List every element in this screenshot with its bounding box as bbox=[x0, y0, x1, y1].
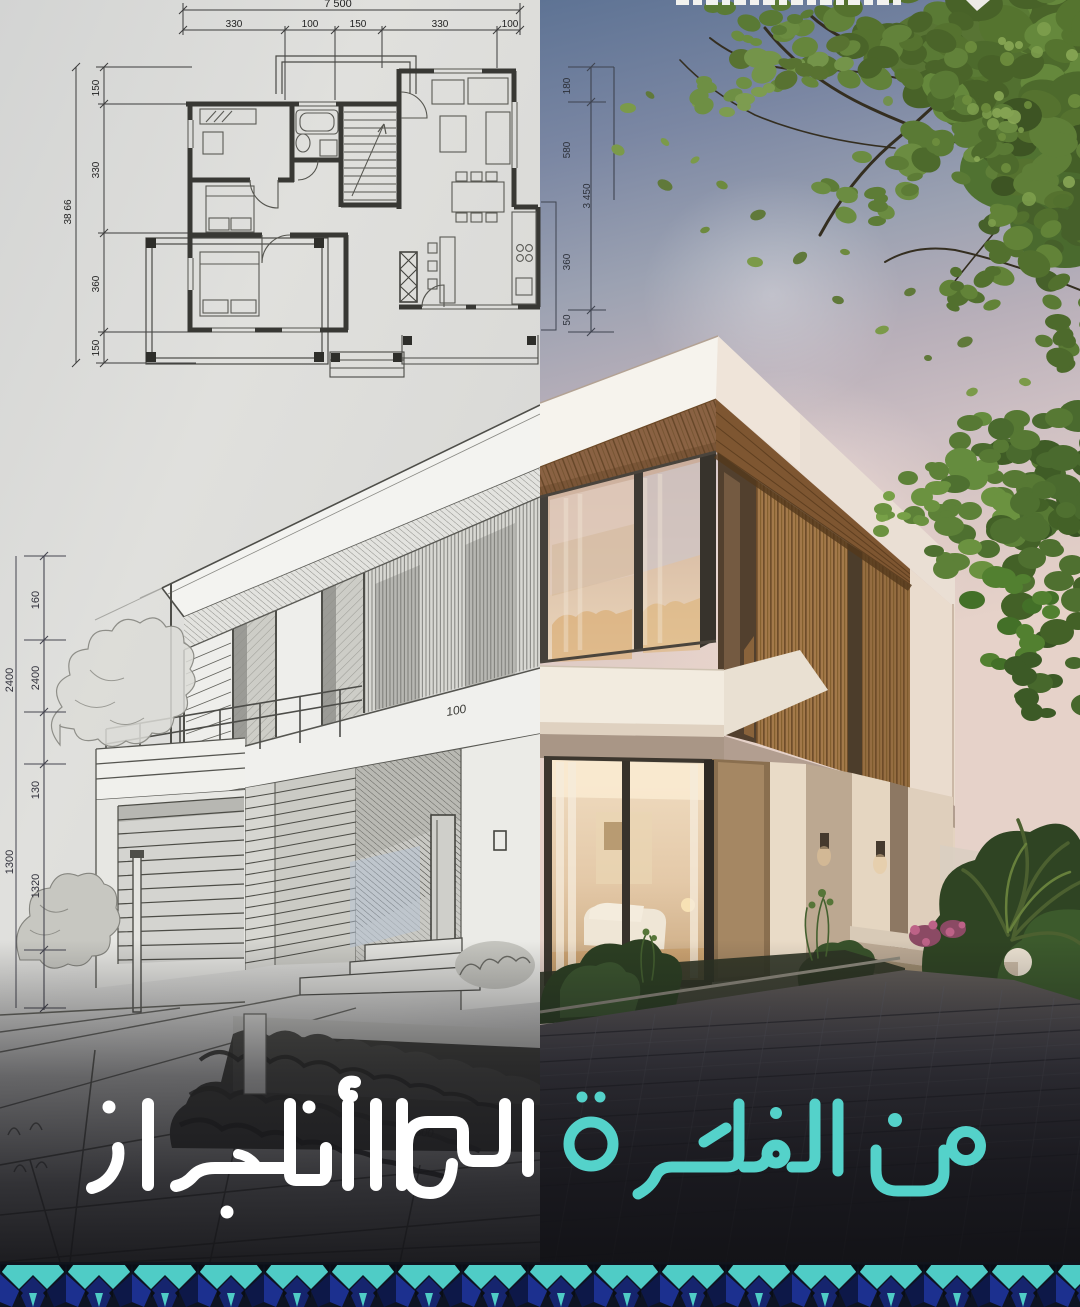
svg-text:1320: 1320 bbox=[30, 874, 42, 898]
svg-text:7 500: 7 500 bbox=[324, 0, 352, 10]
svg-text:330: 330 bbox=[91, 161, 102, 178]
svg-text:130: 130 bbox=[30, 781, 42, 799]
svg-text:330: 330 bbox=[432, 19, 449, 30]
svg-text:2400: 2400 bbox=[4, 668, 16, 692]
svg-text:150: 150 bbox=[91, 79, 102, 96]
svg-text:150: 150 bbox=[91, 339, 102, 356]
svg-text:50: 50 bbox=[562, 314, 573, 326]
svg-text:38 66: 38 66 bbox=[63, 199, 74, 224]
svg-text:150: 150 bbox=[350, 19, 367, 30]
svg-text:100: 100 bbox=[302, 19, 319, 30]
svg-text:330: 330 bbox=[226, 19, 243, 30]
svg-text:160: 160 bbox=[30, 591, 42, 609]
svg-text:1300: 1300 bbox=[4, 850, 16, 874]
svg-text:360: 360 bbox=[91, 275, 102, 292]
svg-text:180: 180 bbox=[562, 77, 573, 94]
svg-text:3 450: 3 450 bbox=[582, 183, 593, 208]
svg-text:360: 360 bbox=[562, 253, 573, 270]
svg-text:580: 580 bbox=[562, 141, 573, 158]
svg-text:100: 100 bbox=[502, 19, 519, 30]
svg-text:2400: 2400 bbox=[30, 666, 42, 690]
